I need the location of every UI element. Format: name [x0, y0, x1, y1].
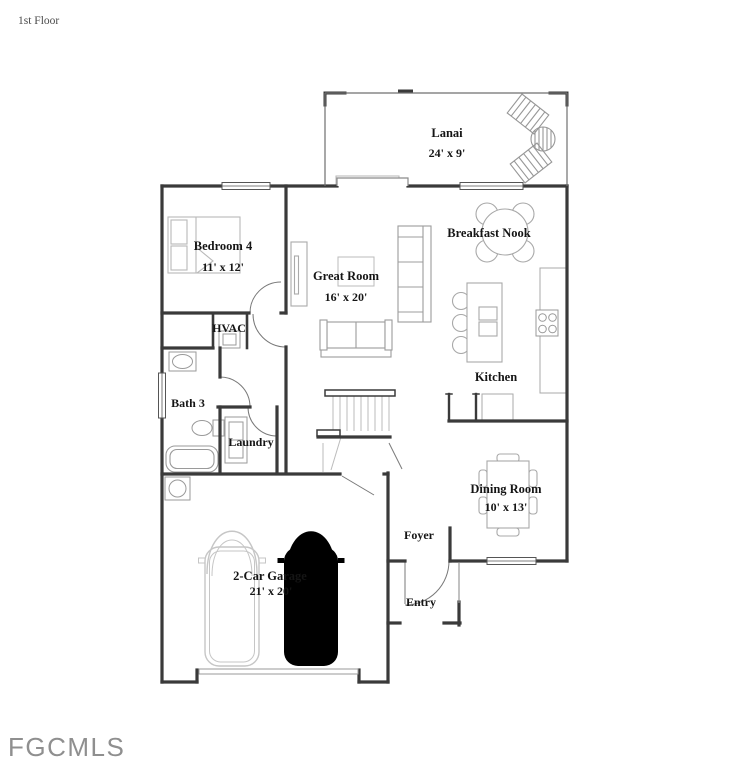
room-dims-lanai: 24' x 9': [429, 147, 466, 159]
stairs: [317, 390, 395, 472]
car-left: [199, 531, 266, 666]
dining-window: [487, 558, 536, 565]
sectional-sofa: [398, 226, 431, 322]
cooktop: [536, 310, 558, 336]
room-label-bedroom4: Bedroom 4: [194, 240, 252, 253]
room-dims-garage: 21' x 20': [250, 585, 293, 597]
floorplan-page: 1st Floor Lanai 24' x 9' Bedroom 4 11' x…: [0, 0, 748, 768]
kitchen-island: [453, 283, 503, 362]
bathtub: [166, 446, 218, 472]
car-right: [278, 531, 345, 666]
breakfast-window: [460, 183, 523, 190]
lanai-lounge-chair-bottom: [510, 143, 552, 183]
bath-sink: [169, 352, 196, 371]
floor-label: 1st Floor: [18, 16, 59, 28]
room-label-entry: Entry: [406, 596, 436, 608]
room-label-great-room: Great Room: [313, 270, 379, 283]
laundry-door-arc: [248, 407, 277, 436]
room-dims-great-room: 16' x 20': [325, 291, 368, 303]
room-label-dining: Dining Room: [470, 483, 541, 496]
floorplan-drawing: [0, 0, 748, 768]
tv-console: [291, 242, 307, 306]
room-label-foyer: Foyer: [404, 529, 434, 541]
bath3-door-arc: [220, 377, 250, 407]
sofa: [320, 320, 392, 357]
hall-door-arc: [253, 314, 286, 347]
bedroom4-window: [222, 183, 270, 190]
room-label-bath3: Bath 3: [171, 397, 205, 409]
room-label-garage: 2-Car Garage: [233, 570, 307, 583]
utility-sink: [165, 477, 190, 500]
room-label-kitchen: Kitchen: [475, 371, 517, 384]
room-dims-dining: 10' x 13': [485, 501, 528, 513]
room-label-breakfast-nook: Breakfast Nook: [447, 227, 530, 240]
sliding-door: [337, 178, 408, 186]
room-label-laundry: Laundry: [228, 436, 273, 448]
garage-entry-door-leaf: [342, 476, 374, 495]
room-label-hvac: HVAC: [212, 322, 246, 334]
bedroom4-door-arc: [250, 282, 281, 313]
room-dims-bedroom4: 11' x 12': [202, 261, 244, 273]
foyer-hall-door-leaf: [389, 443, 402, 469]
garage-door: [199, 669, 358, 674]
watermark: FGCMLS: [8, 734, 125, 760]
room-label-lanai: Lanai: [431, 127, 462, 140]
bath3-window: [159, 373, 166, 418]
pantry-cabinet: [482, 394, 513, 420]
